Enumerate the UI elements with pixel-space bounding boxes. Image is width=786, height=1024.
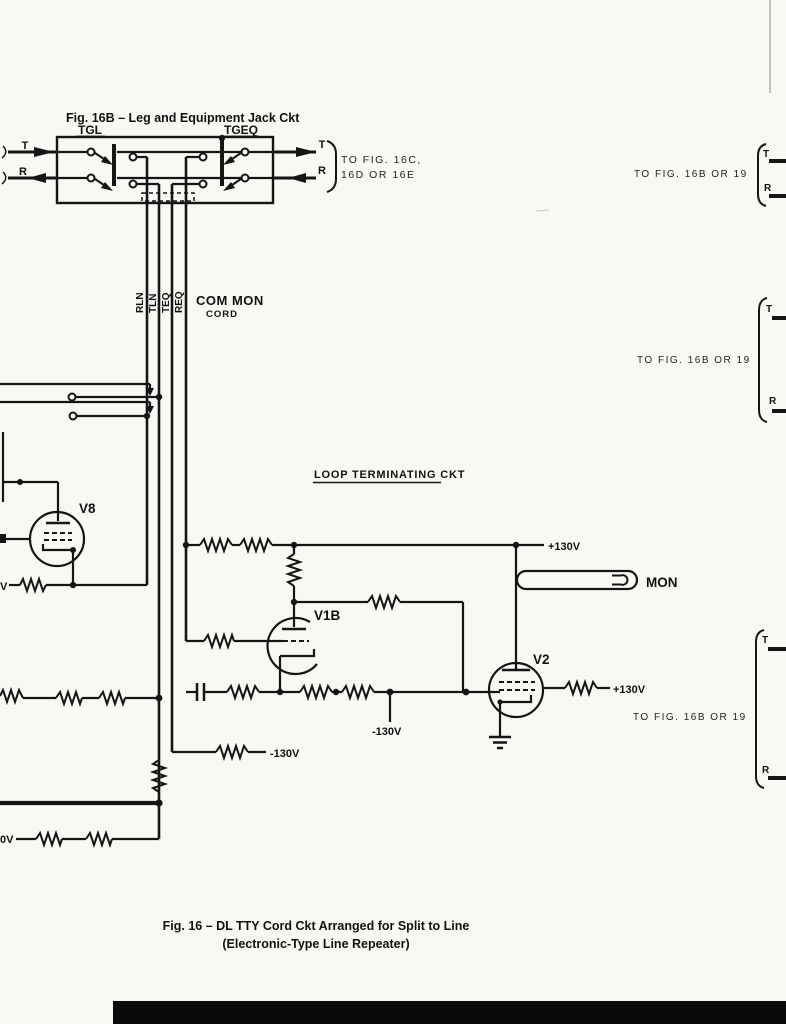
scanned-page: Fig. 16B – Leg and Equipment Jack Ckt TG… [0, 0, 786, 1024]
ref1-text: TO FIG. 16B OR 19 [634, 169, 748, 180]
jack-tgeq-label: TGEQ [224, 123, 258, 137]
v2-label: V2 [533, 652, 550, 667]
caption-line2: (Electronic-Type Line Repeater) [222, 937, 409, 951]
wire-teq-label: TEQ [161, 292, 172, 313]
v2-stage: V2 +130V [466, 652, 646, 748]
voltage-v-partial: V [0, 581, 8, 593]
loop-terminating-circuit: LOOP TERMINATING CKT +130V [0, 469, 581, 846]
v1b-label: V1B [314, 608, 341, 623]
voltage-p130-top: +130V [548, 541, 581, 553]
t-out-label: T [319, 139, 326, 151]
arrow-left-icon [28, 173, 46, 183]
arrow-left-icon [288, 173, 306, 183]
scan-black-bar [113, 1001, 786, 1024]
wire-rln-label: RLN [135, 292, 146, 313]
ref2-t-label: T [766, 304, 772, 315]
mon-label: MON [646, 575, 678, 590]
arrow-right-icon [34, 147, 54, 157]
v1b-tube-envelope [268, 618, 317, 674]
ref3-t-label: T [762, 635, 768, 646]
lamp-jack-icon [517, 571, 637, 589]
v8-stage: V8 V [0, 432, 147, 593]
jack-dest-line2: 16D OR 16E [341, 169, 416, 181]
ref3-text: TO FIG. 16B OR 19 [633, 712, 747, 723]
jack-circuit: TGL TGEQ T R [2, 123, 422, 203]
voltage-n130-drop: -130V [372, 726, 402, 738]
t-in-label: T [22, 140, 29, 152]
caption-line1: Fig. 16 – DL TTY Cord Ckt Arranged for S… [163, 919, 470, 933]
v1b-stage: V1B [268, 602, 341, 692]
ref2-r-label: R [769, 396, 777, 407]
wire-tln-label: TLN [148, 294, 159, 313]
v8-label: V8 [79, 501, 96, 516]
cord-label: CORD [206, 309, 238, 320]
loop-heading: LOOP TERMINATING CKT [314, 469, 465, 481]
ref3-r-label: R [762, 765, 770, 776]
r-out-label: R [318, 165, 326, 177]
schematic: Fig. 16B – Leg and Equipment Jack Ckt TG… [0, 0, 786, 1024]
bottom-caption: Fig. 16 – DL TTY Cord Ckt Arranged for S… [163, 919, 470, 951]
arrow-right-icon [296, 147, 316, 157]
ref1-t-label: T [763, 149, 769, 160]
voltage-0v-partial: 0V [0, 834, 14, 846]
r-in-label: R [19, 166, 27, 178]
com-mon-label: COM MON [196, 293, 264, 308]
wire-req-label: REQ [174, 291, 185, 313]
voltage-n130-teq: -130V [270, 748, 300, 760]
voltage-p130-v2: +130V [613, 684, 646, 696]
cord-wires: RLN TLN TEQ REQ COM MON CORD [0, 157, 264, 839]
right-page-refs: TO FIG. 16B OR 19 T R TO FIG. 16B OR 19 … [633, 144, 786, 788]
jack-tgl-label: TGL [78, 123, 102, 137]
ref2-text: TO FIG. 16B OR 19 [637, 355, 751, 366]
ref1-r-label: R [764, 183, 772, 194]
page-artifacts [113, 0, 786, 1024]
jack-dest-line1: TO FIG. 16C, [341, 154, 422, 166]
